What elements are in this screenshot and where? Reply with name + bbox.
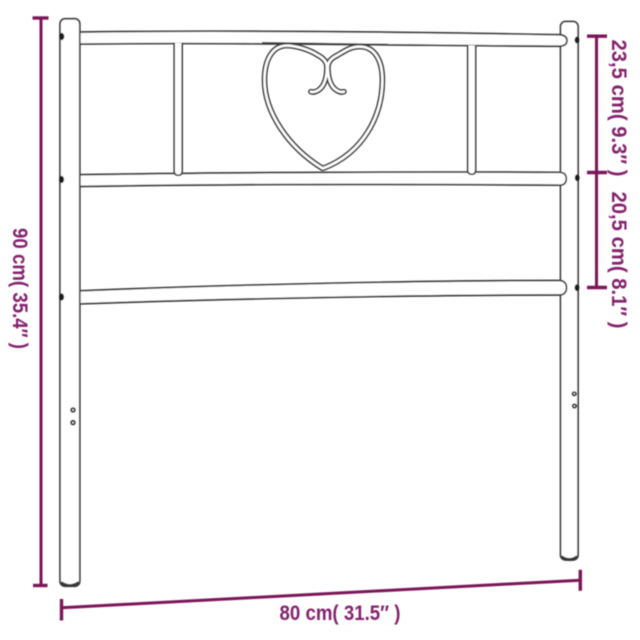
svg-text:20,5 cm( 8.1″ ): 20,5 cm( 8.1″ ) bbox=[607, 192, 630, 329]
svg-text:23,5 cm( 9.3″ ): 23,5 cm( 9.3″ ) bbox=[607, 40, 630, 177]
svg-text:90 cm( 35.4″ ): 90 cm( 35.4″ ) bbox=[8, 228, 31, 349]
svg-text:80 cm( 31.5″ ): 80 cm( 31.5″ ) bbox=[280, 602, 401, 625]
